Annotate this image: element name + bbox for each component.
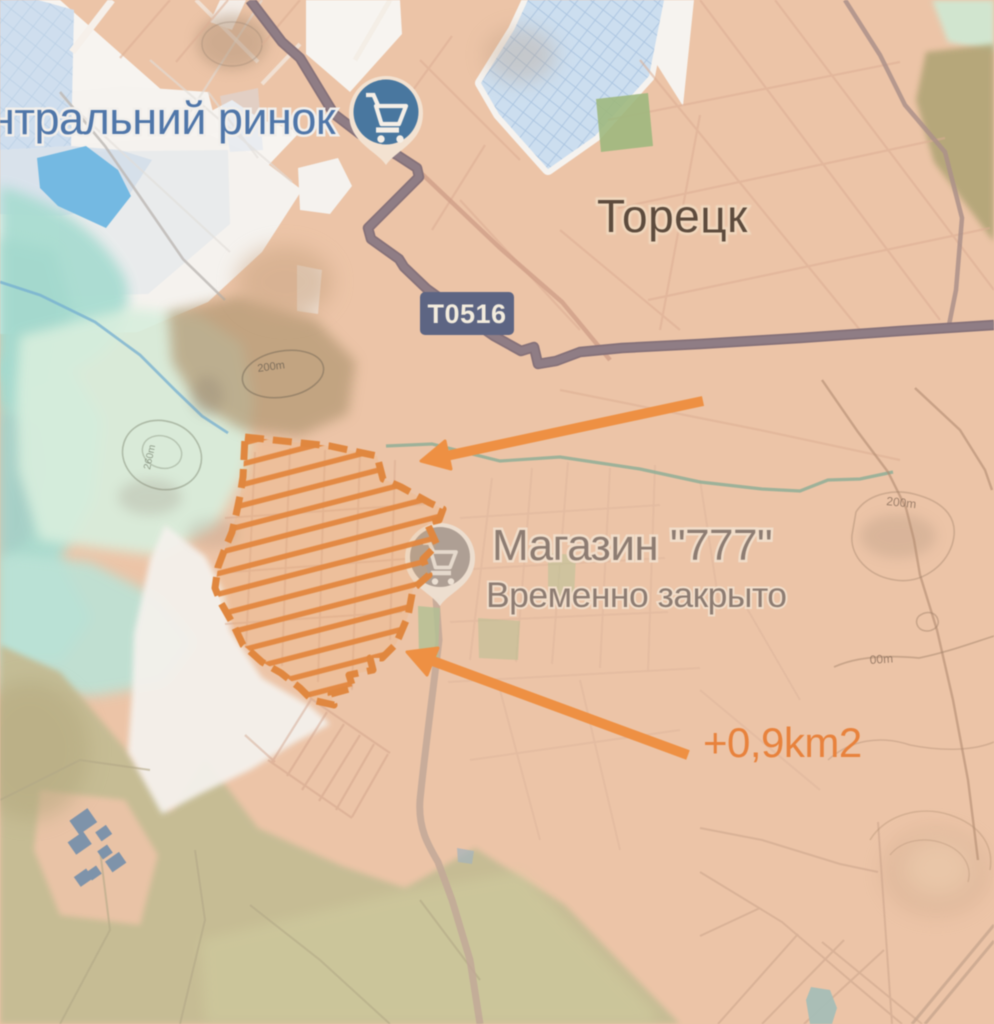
svg-text:Временно закрыто: Временно закрыто [486, 575, 787, 615]
svg-text:Магазин "777": Магазин "777" [492, 521, 772, 570]
svg-text:00m: 00m [869, 651, 893, 667]
svg-text:+0,9km2: +0,9km2 [703, 719, 862, 766]
svg-text:T0516: T0516 [427, 299, 506, 329]
svg-text:Торецк: Торецк [597, 190, 748, 242]
svg-text:нтральний ринок: нтральний ринок [0, 93, 336, 144]
